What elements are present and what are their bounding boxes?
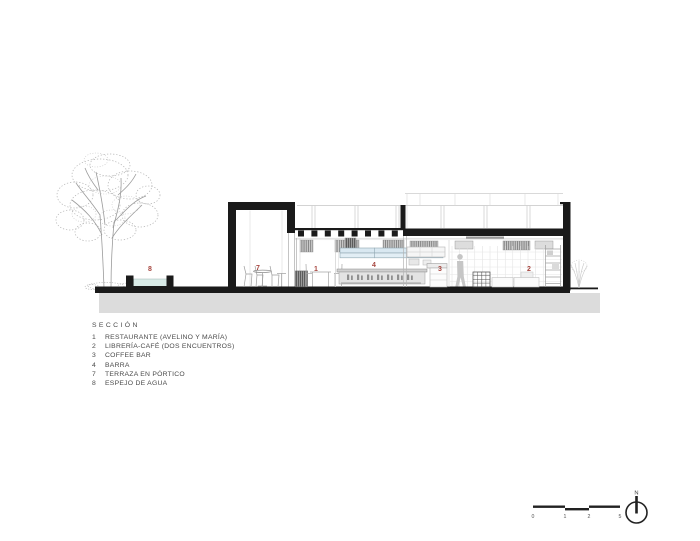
scale-tick-2: 2 bbox=[588, 514, 591, 520]
legend-item-num: 1 bbox=[92, 333, 105, 342]
legend-item-label: BARRA bbox=[105, 361, 130, 370]
north-arrow-icon: N bbox=[626, 491, 647, 524]
scale-tick-5: 5 bbox=[619, 514, 622, 520]
section-drawing: 8 7 1 4 3 2 0 1 2 5 N bbox=[0, 0, 700, 541]
legend-item: 1 RESTAURANTE (AVELINO Y MARÍA) bbox=[92, 333, 234, 342]
marker-coffee-bar: 3 bbox=[438, 266, 442, 273]
roof-slab-left bbox=[295, 228, 405, 237]
legend-item-num: 7 bbox=[92, 370, 105, 379]
legend-item-label: COFFEE BAR bbox=[105, 351, 151, 360]
legend-item-num: 8 bbox=[92, 379, 105, 388]
architectural-sheet: 8 7 1 4 3 2 0 1 2 5 N SECCIÓN 1 RESTA bbox=[0, 0, 700, 541]
legend-item-label: LIBRERÍA-CAFÉ (DOS ENCUENTROS) bbox=[105, 342, 234, 351]
tree-sketch bbox=[56, 153, 160, 290]
elevation-beyond bbox=[297, 194, 563, 229]
right-wall bbox=[560, 202, 571, 291]
scale-tick-0: 0 bbox=[532, 514, 535, 520]
legend-item: 3 COFFEE BAR bbox=[92, 351, 234, 360]
legend-item-label: TERRAZA EN PÓRTICO bbox=[105, 370, 185, 379]
legend-item: 2 LIBRERÍA-CAFÉ (DOS ENCUENTROS) bbox=[92, 342, 234, 351]
roof-slab-right bbox=[403, 229, 563, 237]
legend-item-num: 3 bbox=[92, 351, 105, 360]
ceiling-lines bbox=[295, 238, 563, 240]
entry-door-frame bbox=[289, 233, 295, 287]
scale-tick-1: 1 bbox=[564, 514, 567, 520]
legend: SECCIÓN 1 RESTAURANTE (AVELINO Y MARÍA) … bbox=[92, 322, 234, 388]
marker-libreria: 2 bbox=[527, 266, 531, 273]
north-label: N bbox=[634, 491, 638, 497]
marker-restaurante: 1 bbox=[314, 266, 318, 273]
legend-title: SECCIÓN bbox=[92, 322, 234, 329]
marker-barra: 4 bbox=[372, 262, 376, 269]
marker-terraza: 7 bbox=[256, 265, 260, 272]
legend-item-label: ESPEJO DE AGUA bbox=[105, 379, 167, 388]
legend-item-num: 4 bbox=[92, 361, 105, 370]
legend-item-label: RESTAURANTE (AVELINO Y MARÍA) bbox=[105, 333, 227, 342]
marker-espejo: 8 bbox=[148, 266, 152, 273]
bar-counter bbox=[337, 269, 427, 284]
subsoil-band bbox=[99, 293, 600, 313]
water-basin bbox=[126, 276, 174, 289]
legend-item-num: 2 bbox=[92, 342, 105, 351]
legend-item: 4 BARRA bbox=[92, 361, 234, 370]
clerestory-mullion bbox=[401, 205, 406, 229]
roof-equipment bbox=[466, 237, 504, 240]
scale-bar: 0 1 2 5 bbox=[532, 506, 622, 521]
plant-sketch bbox=[571, 260, 587, 288]
legend-item: 8 ESPEJO DE AGUA bbox=[92, 379, 234, 388]
legend-item: 7 TERRAZA EN PÓRTICO bbox=[92, 370, 234, 379]
